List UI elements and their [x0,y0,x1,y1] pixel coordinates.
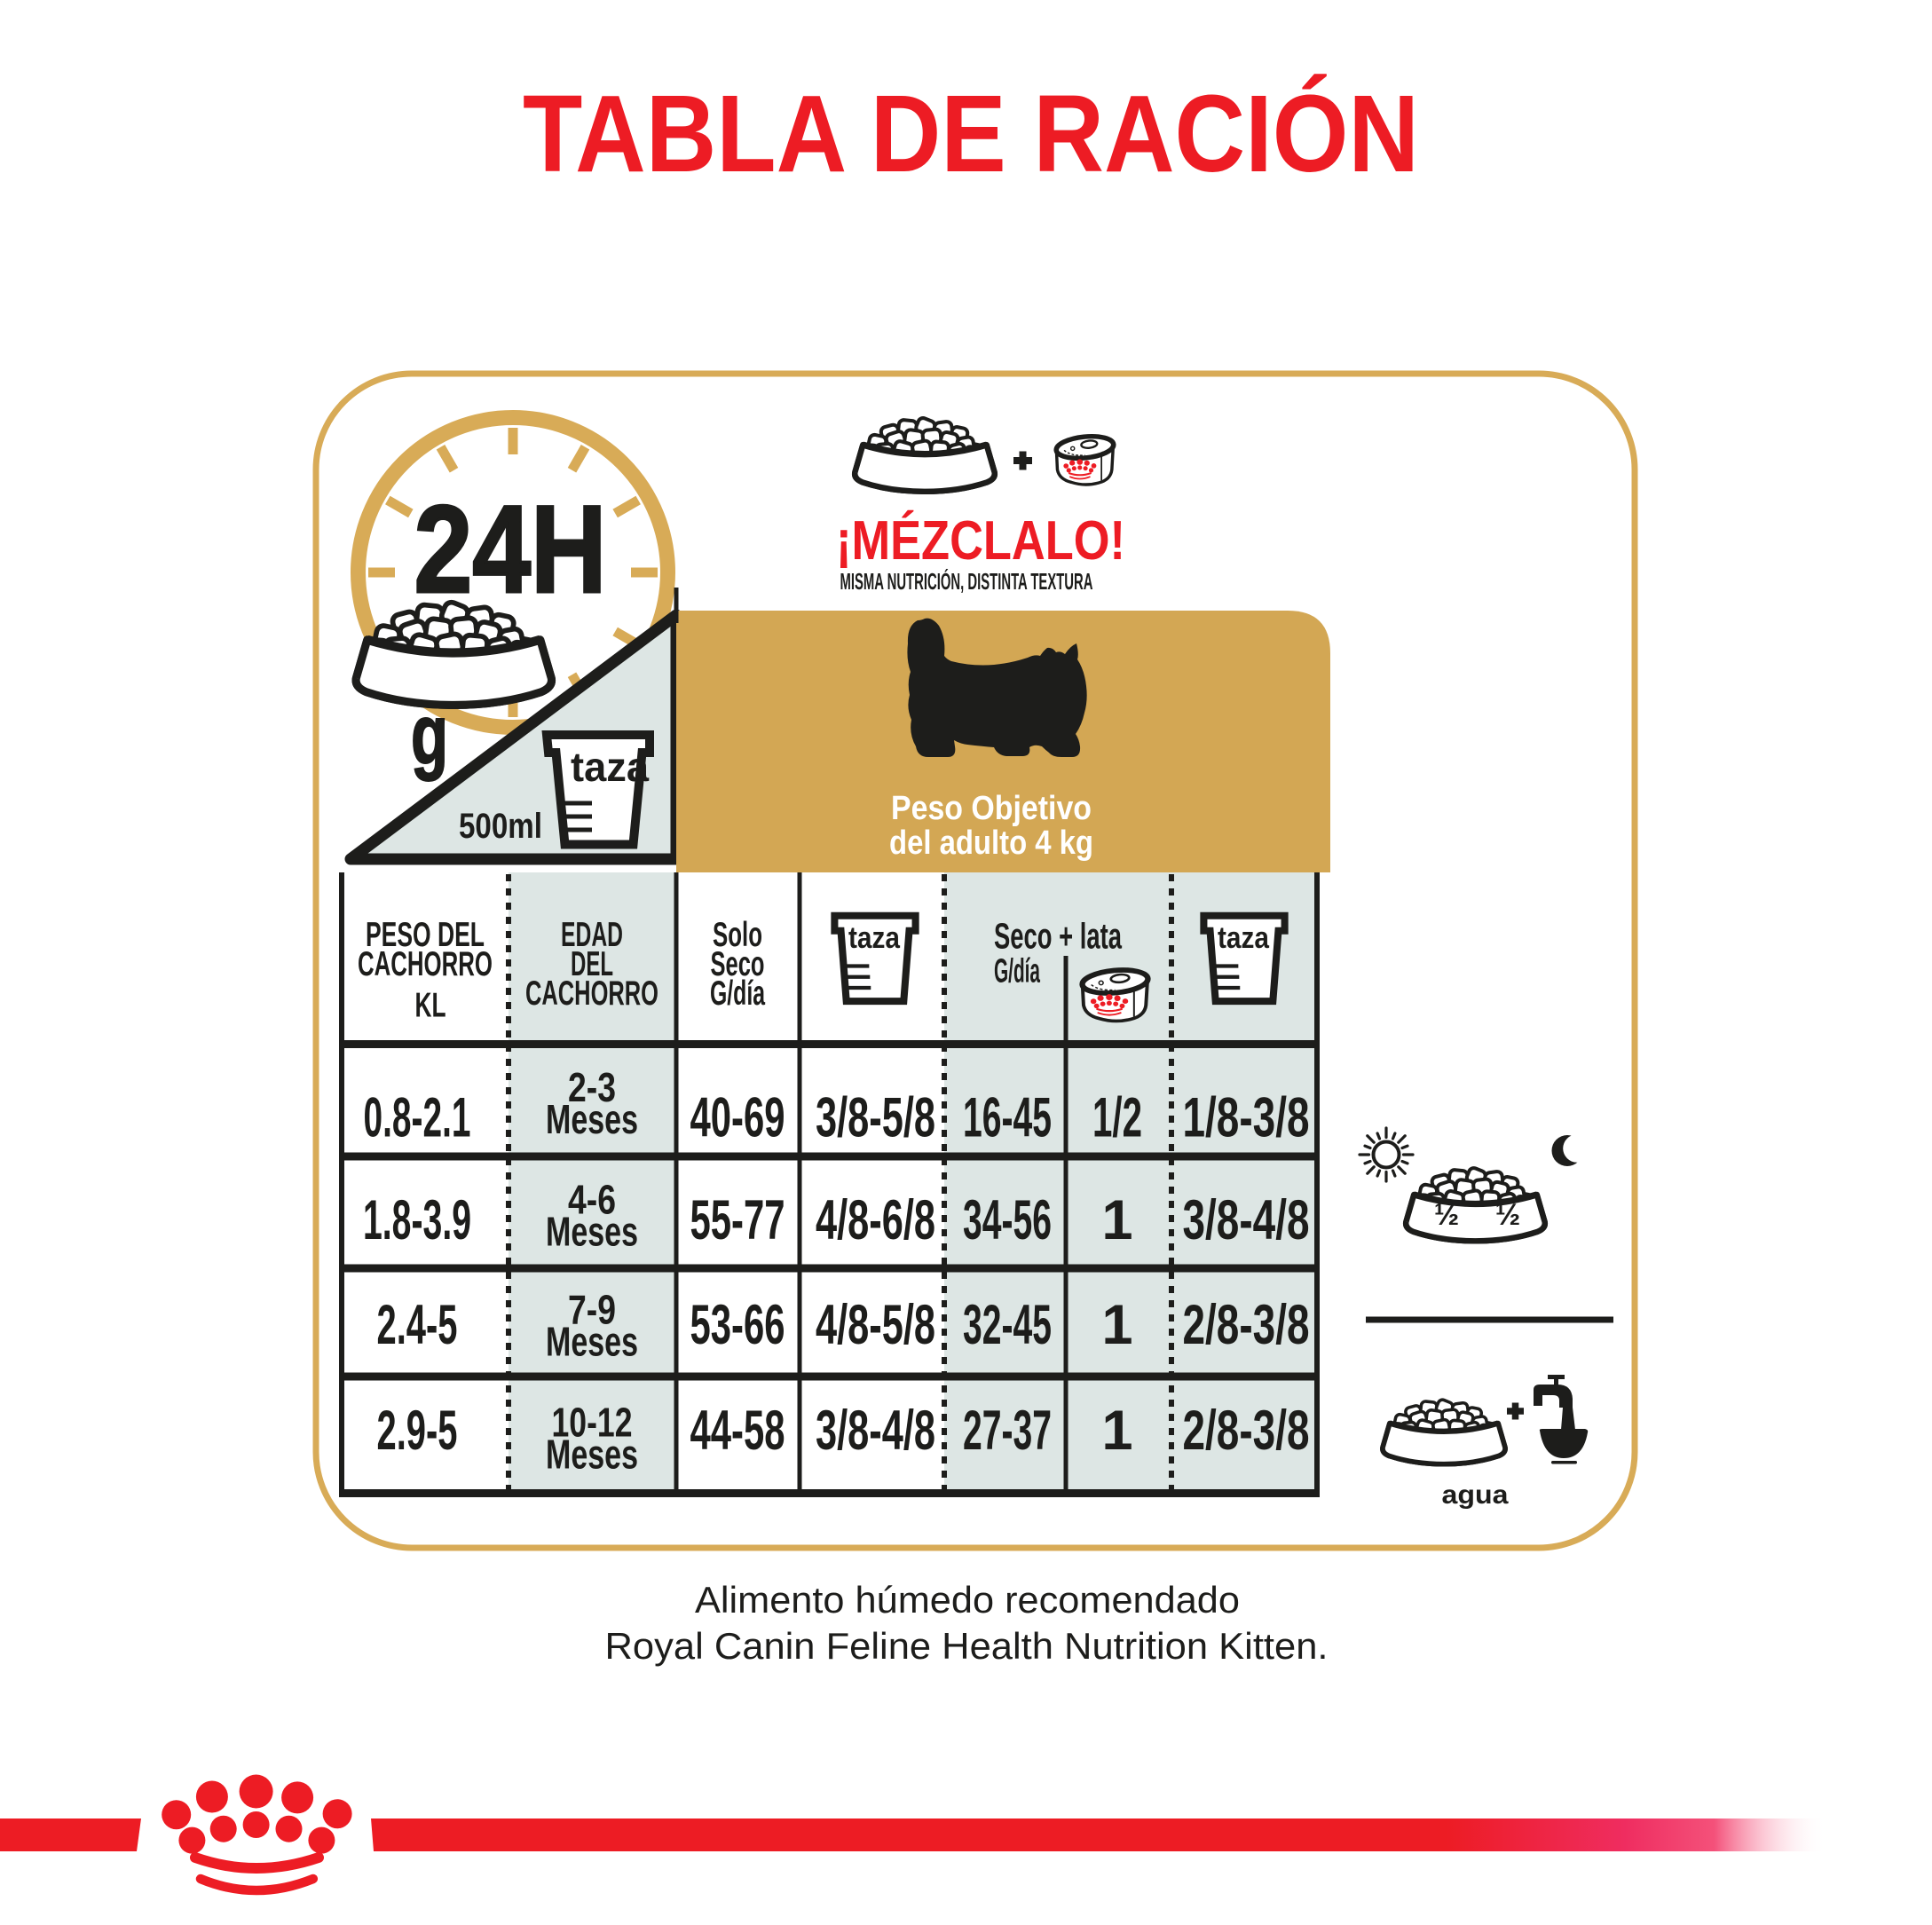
svg-text:taza: taza [1218,921,1270,955]
svg-text:500ml: 500ml [459,807,542,846]
svg-text:1: 1 [1101,1189,1132,1251]
svg-text:taza: taza [848,921,901,955]
svg-text:55-77: 55-77 [690,1189,785,1251]
svg-text:Royal Canin Feline Health Nutr: Royal Canin Feline Health Nutrition Kitt… [605,1625,1329,1667]
svg-text:CACHORRO: CACHORRO [358,945,493,983]
svg-text:2.9-5: 2.9-5 [377,1400,458,1462]
svg-text:Alimento húmedo recomendado: Alimento húmedo recomendado [695,1579,1240,1621]
svg-text:del adulto 4 kg: del adulto 4 kg [889,824,1093,862]
svg-text:44-58: 44-58 [690,1400,785,1462]
svg-text:2/8-3/8: 2/8-3/8 [1183,1294,1310,1356]
svg-text:KL: KL [415,987,446,1025]
svg-text:½: ½ [1495,1198,1520,1232]
svg-text:MISMA NUTRICIÓN, DISTINTA TEXT: MISMA NUTRICIÓN, DISTINTA TEXTURA [840,568,1093,595]
svg-text:agua: agua [1442,1480,1509,1510]
svg-text:1.8-3.9: 1.8-3.9 [363,1189,471,1251]
svg-text:CACHORRO: CACHORRO [525,974,658,1013]
svg-text:Meses: Meses [546,1319,638,1365]
svg-text:¡MÉZCLALO!: ¡MÉZCLALO! [836,510,1125,572]
svg-text:16-45: 16-45 [963,1087,1052,1149]
svg-text:0.8-2.1: 0.8-2.1 [364,1087,471,1149]
svg-text:TABLA DE RACIÓN: TABLA DE RACIÓN [523,74,1419,195]
svg-text:G/día: G/día [994,953,1040,990]
svg-text:32-45: 32-45 [963,1294,1052,1356]
svg-text:3/8-5/8: 3/8-5/8 [816,1087,935,1149]
svg-text:G/día: G/día [710,974,765,1013]
svg-text:3/8-4/8: 3/8-4/8 [1183,1189,1310,1251]
svg-text:3/8-4/8: 3/8-4/8 [816,1400,935,1462]
svg-text:24H: 24H [414,479,607,619]
svg-text:34-56: 34-56 [963,1189,1052,1251]
svg-text:Meses: Meses [546,1096,638,1142]
svg-text:Meses: Meses [546,1432,638,1478]
svg-text:½: ½ [1434,1198,1459,1232]
svg-text:taza: taza [571,744,649,790]
svg-text:Peso Objetivo: Peso Objetivo [891,790,1092,827]
svg-text:2/8-3/8: 2/8-3/8 [1183,1400,1310,1462]
svg-text:1: 1 [1101,1400,1132,1462]
svg-text:27-37: 27-37 [963,1400,1052,1462]
svg-text:4/8-6/8: 4/8-6/8 [816,1189,935,1251]
svg-text:4/8-5/8: 4/8-5/8 [816,1294,935,1356]
svg-text:53-66: 53-66 [690,1294,785,1356]
svg-text:g: g [411,688,448,782]
svg-text:40-69: 40-69 [690,1087,785,1149]
svg-text:1/2: 1/2 [1092,1087,1142,1149]
svg-text:Meses: Meses [546,1209,638,1255]
svg-text:2.4-5: 2.4-5 [377,1294,458,1356]
svg-text:Seco + lata: Seco + lata [994,916,1123,957]
svg-text:1: 1 [1101,1294,1132,1356]
svg-text:1/8-3/8: 1/8-3/8 [1183,1087,1310,1149]
